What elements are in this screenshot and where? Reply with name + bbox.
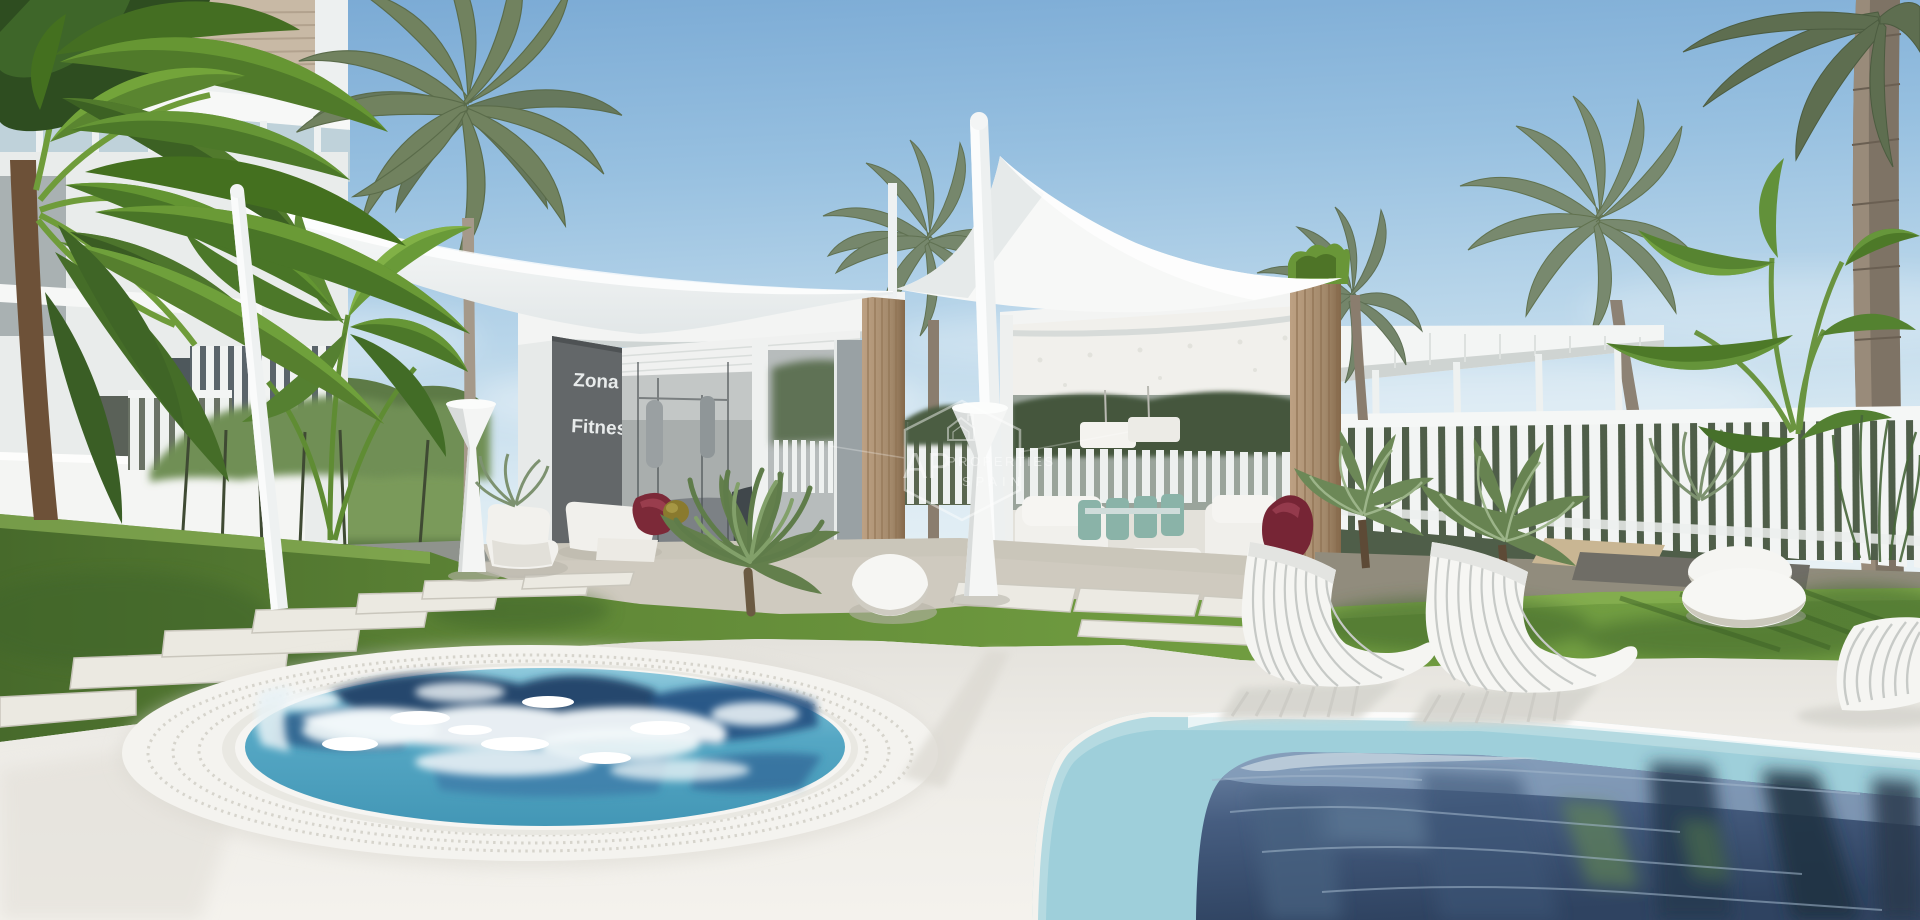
svg-text:PROPERTIES: PROPERTIES bbox=[947, 454, 1056, 469]
svg-text:Zona: Zona bbox=[573, 370, 620, 393]
svg-text:AP: AP bbox=[903, 445, 951, 486]
svg-text:SPAIN: SPAIN bbox=[962, 474, 1025, 489]
